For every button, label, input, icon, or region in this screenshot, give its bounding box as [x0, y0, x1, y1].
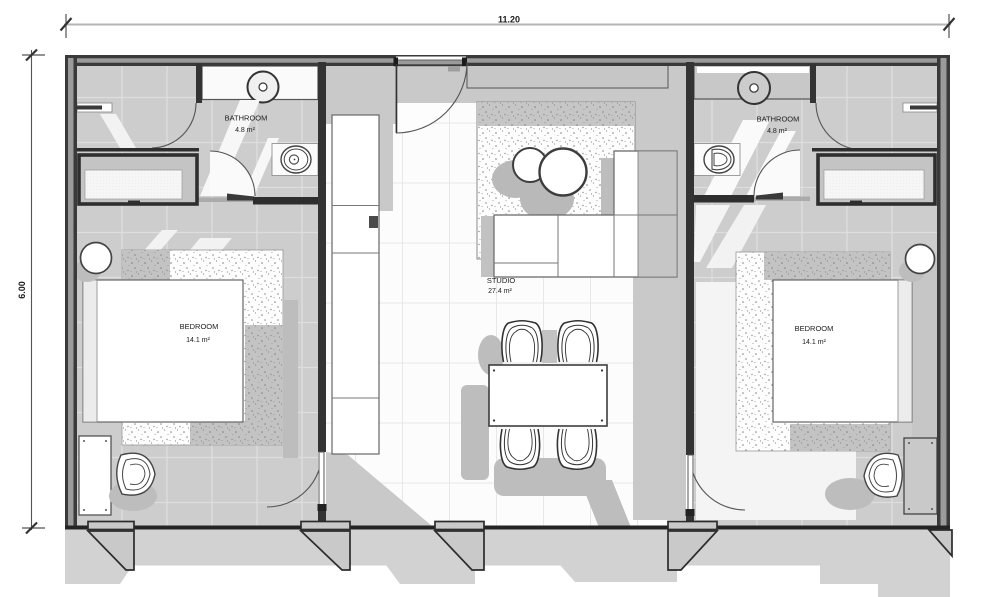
- svg-text:BATHROOM: BATHROOM: [225, 114, 268, 123]
- svg-text:BEDROOM: BEDROOM: [180, 322, 219, 331]
- svg-text:4.8 m²: 4.8 m²: [767, 128, 788, 135]
- svg-text:11.20: 11.20: [498, 15, 520, 25]
- svg-text:27.4 m²: 27.4 m²: [488, 288, 512, 295]
- svg-text:4.8 m²: 4.8 m²: [235, 127, 256, 134]
- svg-text:14.1 m²: 14.1 m²: [802, 339, 826, 346]
- svg-text:BATHROOM: BATHROOM: [757, 115, 800, 124]
- svg-text:6.00: 6.00: [17, 281, 27, 299]
- svg-text:14.1 m²: 14.1 m²: [186, 337, 210, 344]
- svg-text:STUDIO: STUDIO: [487, 276, 516, 285]
- svg-text:BEDROOM: BEDROOM: [795, 324, 834, 333]
